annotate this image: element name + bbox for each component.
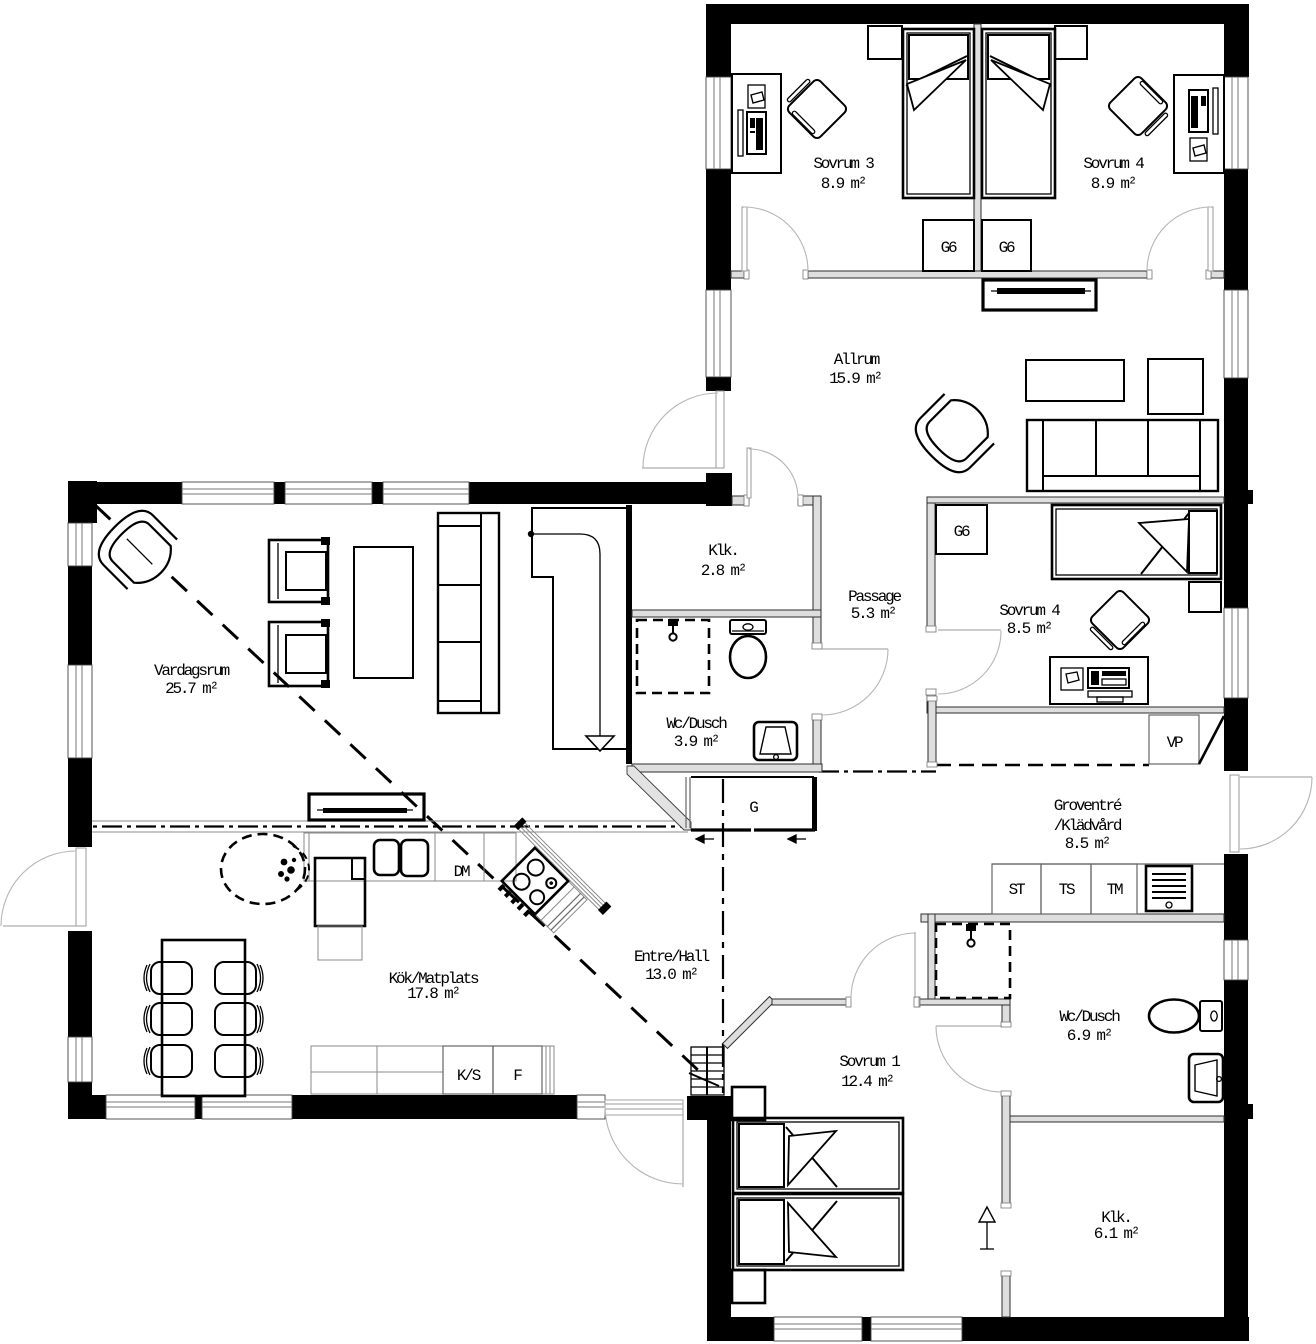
- svg-text:K/S: K/S: [457, 1067, 481, 1085]
- svg-text:TM: TM: [1107, 881, 1123, 899]
- svg-text:Wc/Dusch: Wc/Dusch: [666, 715, 727, 733]
- svg-text:8.9 m²: 8.9 m²: [821, 175, 866, 193]
- svg-text:5.3 m²: 5.3 m²: [851, 605, 896, 623]
- svg-text:Entre/Hall: Entre/Hall: [634, 948, 710, 966]
- svg-text:17.8 m²: 17.8 m²: [407, 985, 459, 1003]
- svg-text:Allrum: Allrum: [834, 351, 880, 369]
- svg-text:8.5 m²: 8.5 m²: [1065, 835, 1110, 853]
- svg-text:6.9 m²: 6.9 m²: [1067, 1027, 1112, 1045]
- svg-text:8.5 m²: 8.5 m²: [1007, 620, 1052, 638]
- svg-text:DM: DM: [454, 863, 470, 881]
- svg-text:Sovrum 3: Sovrum 3: [813, 155, 874, 173]
- svg-text:Vardagsrum: Vardagsrum: [154, 662, 230, 680]
- svg-text:8.9 m²: 8.9 m²: [1091, 175, 1136, 193]
- svg-text:12.4 m²: 12.4 m²: [841, 1073, 893, 1091]
- svg-text:2.8 m²: 2.8 m²: [701, 562, 746, 580]
- svg-text:Groventré: Groventré: [1054, 797, 1122, 815]
- svg-text:13.0 m²: 13.0 m²: [645, 966, 697, 984]
- svg-text:G6: G6: [941, 239, 957, 257]
- svg-text:3.9 m²: 3.9 m²: [674, 733, 719, 751]
- svg-text:Klk.: Klk.: [708, 542, 738, 560]
- svg-text:Passage: Passage: [848, 588, 901, 606]
- svg-text:TS: TS: [1059, 881, 1075, 899]
- svg-text:G6: G6: [999, 239, 1015, 257]
- svg-text:Sovrum 1: Sovrum 1: [839, 1053, 900, 1071]
- svg-text:VP: VP: [1167, 734, 1183, 752]
- svg-text:Sovrum 4: Sovrum 4: [999, 602, 1060, 620]
- svg-text:G6: G6: [954, 523, 970, 541]
- svg-text:Sovrum 4: Sovrum 4: [1083, 155, 1144, 173]
- svg-text:ST: ST: [1009, 881, 1025, 899]
- svg-text:Wc/Dusch: Wc/Dusch: [1059, 1008, 1120, 1026]
- svg-text:6.1 m²: 6.1 m²: [1094, 1225, 1139, 1243]
- svg-text:25.7 m²: 25.7 m²: [165, 680, 217, 698]
- svg-text:15.9 m²: 15.9 m²: [829, 370, 881, 388]
- svg-text:/Klädvård: /Klädvård: [1054, 817, 1122, 835]
